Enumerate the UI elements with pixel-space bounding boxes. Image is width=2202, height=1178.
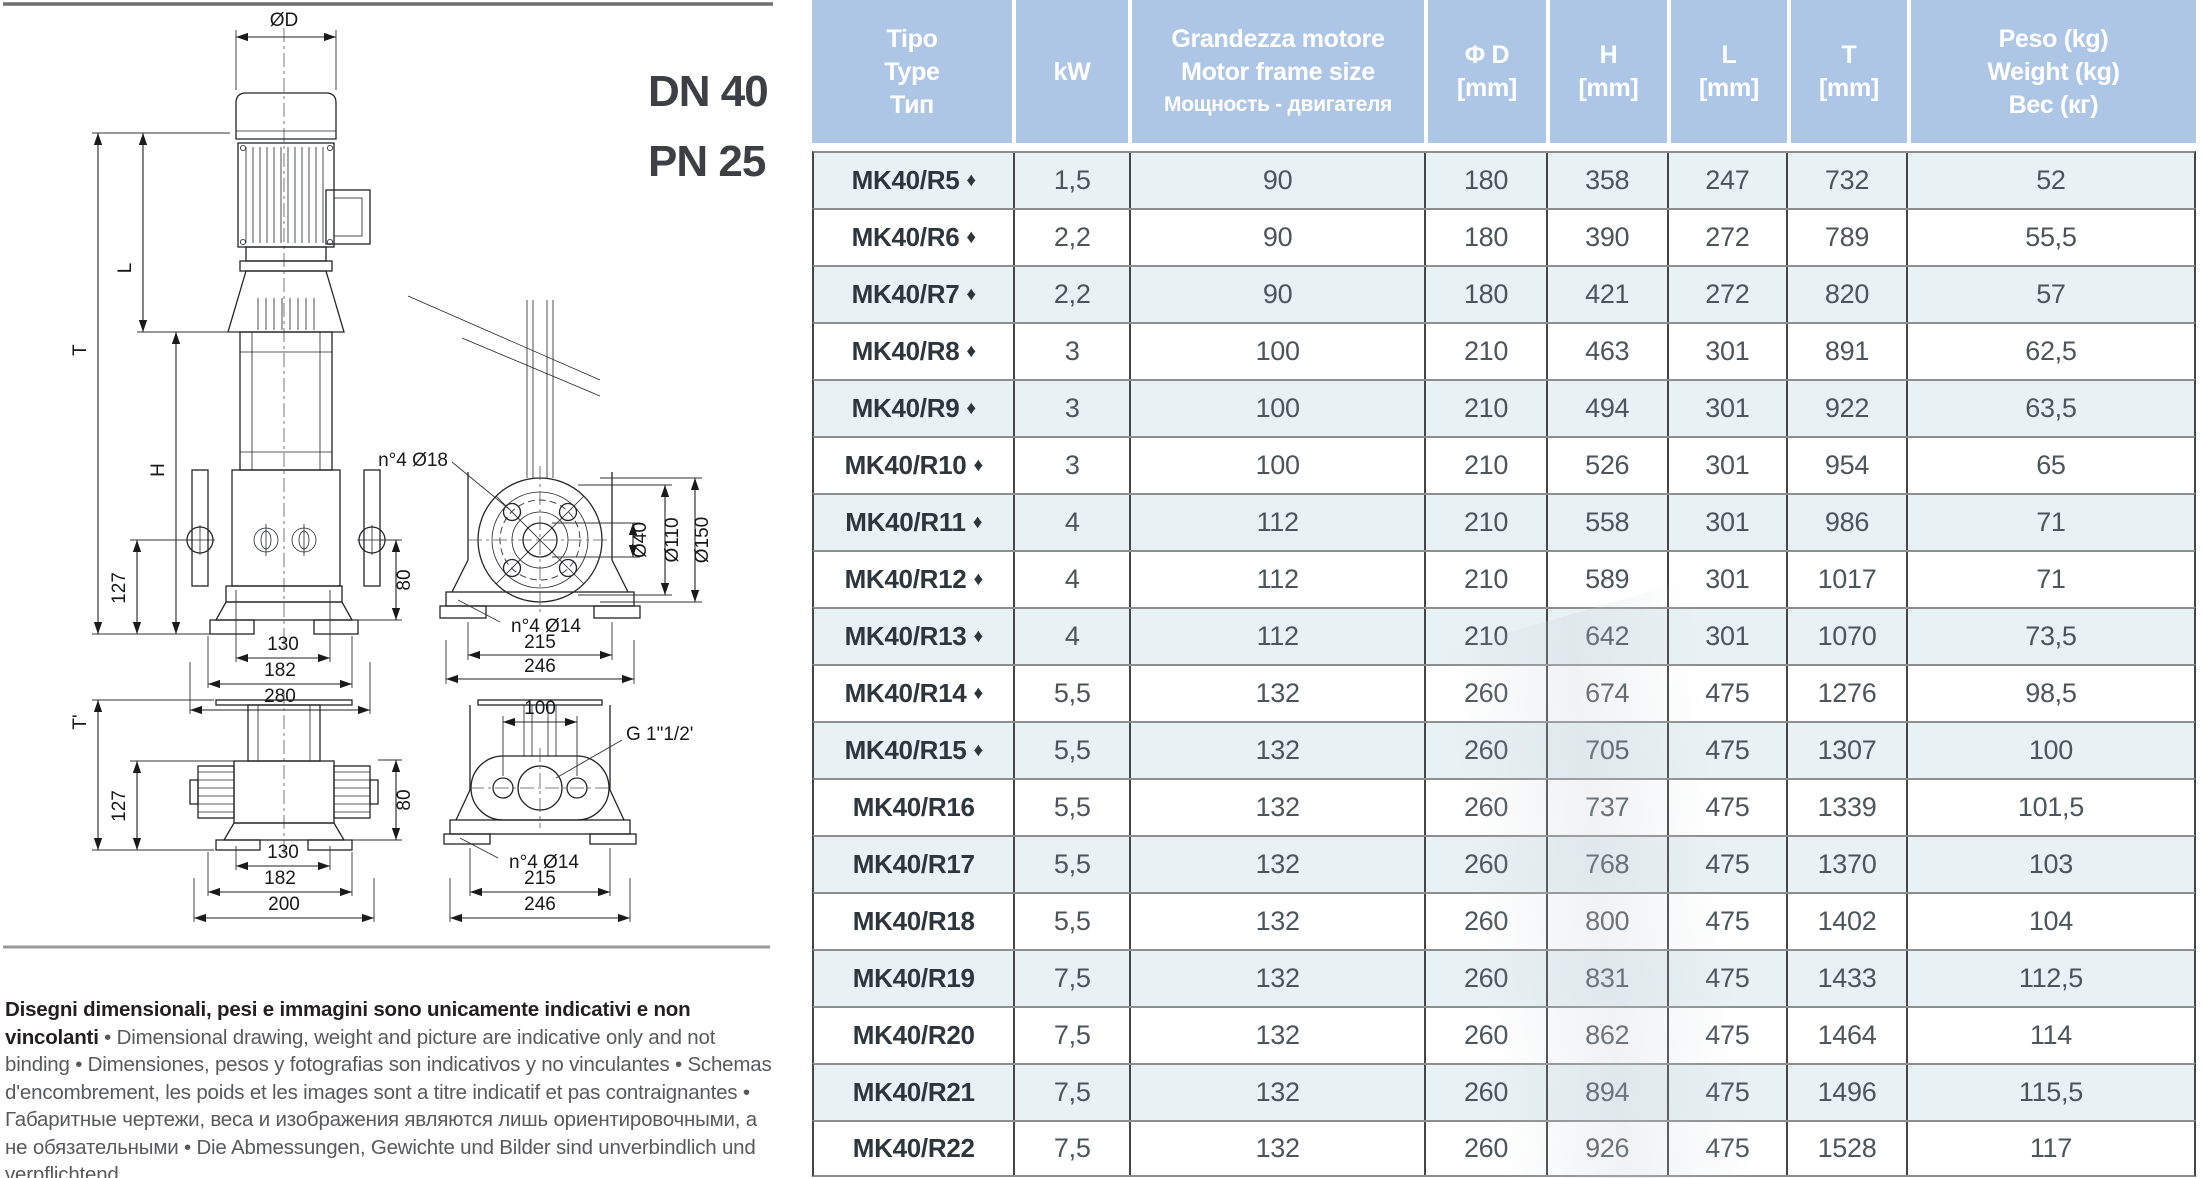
phid-cell: 180 xyxy=(1424,210,1546,265)
dim-label-d150: Ø150 xyxy=(692,517,713,563)
frame-cell: 132 xyxy=(1129,780,1424,835)
h-cell: 390 xyxy=(1546,210,1667,265)
model-cell: MK40/R16 xyxy=(814,780,1013,835)
model-cell: MK40/R6♦ xyxy=(814,210,1013,265)
header-phi-d-unit: [mm] xyxy=(1457,73,1517,103)
phid-cell: 210 xyxy=(1424,324,1546,379)
table-row: MK40/R10♦310021052630195465 xyxy=(812,436,2196,493)
h-cell: 526 xyxy=(1546,438,1667,493)
model-label: MK40/R16 xyxy=(853,792,975,823)
t-cell: 1339 xyxy=(1786,780,1906,835)
header-frame-ru: Мощность - двигателя xyxy=(1164,90,1392,120)
kw-cell: 7,5 xyxy=(1013,1065,1129,1120)
table-row: MK40/R15♦5,51322607054751307100 xyxy=(812,721,2196,778)
weight-cell: 65 xyxy=(1906,438,2194,493)
weight-cell: 117 xyxy=(1906,1122,2194,1175)
weight-cell: 98,5 xyxy=(1906,666,2194,721)
t-cell: 1307 xyxy=(1786,723,1906,778)
table-row: MK40/R185,51322608004751402104 xyxy=(812,892,2196,949)
front-view: ØD xyxy=(70,10,415,714)
diamond-icon: ♦ xyxy=(966,284,975,306)
l-cell: 475 xyxy=(1667,723,1787,778)
t-cell: 1276 xyxy=(1786,666,1906,721)
dim-label-130-front: 130 xyxy=(267,634,299,655)
model-label: MK40/R19 xyxy=(853,963,975,994)
kw-cell: 4 xyxy=(1013,609,1129,664)
kw-cell: 4 xyxy=(1013,495,1129,550)
h-cell: 463 xyxy=(1546,324,1667,379)
t-cell: 1402 xyxy=(1786,894,1906,949)
table-row: MK40/R11♦411221055830198671 xyxy=(812,493,2196,550)
diamond-icon: ♦ xyxy=(966,170,975,192)
weight-cell: 71 xyxy=(1906,552,2194,607)
weight-cell: 114 xyxy=(1906,1008,2194,1063)
table-row: MK40/R217,51322608944751496115,5 xyxy=(812,1063,2196,1120)
l-cell: 475 xyxy=(1667,951,1787,1006)
l-cell: 301 xyxy=(1667,495,1787,550)
l-cell: 272 xyxy=(1667,267,1787,322)
l-cell: 475 xyxy=(1667,1065,1787,1120)
dim-label-215-upper: 215 xyxy=(524,632,556,653)
header-h-unit: [mm] xyxy=(1579,73,1639,103)
diamond-icon: ♦ xyxy=(973,683,982,705)
header-frame-it: Grandezza motore xyxy=(1171,24,1384,54)
header-type-en: Type xyxy=(884,57,939,87)
model-cell: MK40/R17 xyxy=(814,837,1013,892)
pn-label: PN 25 xyxy=(648,137,766,186)
dn-label: DN 40 xyxy=(648,67,768,116)
table-row: MK40/R227,51322609264751528117 xyxy=(812,1120,2196,1177)
spec-table: Tipo Type Тип kW Grandezza motore Motor … xyxy=(812,0,2196,1178)
h-cell: 894 xyxy=(1546,1065,1667,1120)
l-cell: 247 xyxy=(1667,153,1787,208)
h-cell: 421 xyxy=(1546,267,1667,322)
kw-cell: 2,2 xyxy=(1013,267,1129,322)
model-cell: MK40/R5♦ xyxy=(814,153,1013,208)
table-header-row: Tipo Type Тип kW Grandezza motore Motor … xyxy=(812,0,2196,143)
l-cell: 475 xyxy=(1667,837,1787,892)
frame-cell: 100 xyxy=(1129,324,1424,379)
model-label: MK40/R21 xyxy=(853,1077,975,1108)
model-label: MK40/R5 xyxy=(852,165,960,196)
table-row: MK40/R9♦310021049430192263,5 xyxy=(812,379,2196,436)
t-cell: 1528 xyxy=(1786,1122,1906,1175)
t-cell: 986 xyxy=(1786,495,1906,550)
table-row: MK40/R175,51322607684751370103 xyxy=(812,835,2196,892)
frame-cell: 112 xyxy=(1129,552,1424,607)
h-cell: 674 xyxy=(1546,666,1667,721)
catalog-page: DN 40 PN 25 ØD xyxy=(0,0,2202,1178)
l-cell: 301 xyxy=(1667,381,1787,436)
t-cell: 1464 xyxy=(1786,1008,1906,1063)
model-cell: MK40/R21 xyxy=(814,1065,1013,1120)
model-label: MK40/R9 xyxy=(852,393,960,424)
diamond-icon: ♦ xyxy=(966,398,975,420)
model-label: MK40/R6 xyxy=(852,222,960,253)
model-label: MK40/R10 xyxy=(845,450,967,481)
model-cell: MK40/R14♦ xyxy=(814,666,1013,721)
frame-cell: 132 xyxy=(1129,837,1424,892)
model-label: MK40/R12 xyxy=(845,564,967,595)
header-h-label: H xyxy=(1600,40,1618,70)
frame-cell: 90 xyxy=(1129,153,1424,208)
h-cell: 558 xyxy=(1546,495,1667,550)
table-row: MK40/R207,51322608624751464114 xyxy=(812,1006,2196,1063)
model-label: MK40/R13 xyxy=(845,621,967,652)
header-t-label: T xyxy=(1842,40,1857,70)
dim-label-80-front: 80 xyxy=(394,569,415,590)
header-h: H [mm] xyxy=(1546,0,1667,143)
header-weight-ru: Вес (кг) xyxy=(2009,90,2099,120)
frame-cell: 132 xyxy=(1129,723,1424,778)
weight-cell: 103 xyxy=(1906,837,2194,892)
model-cell: MK40/R8♦ xyxy=(814,324,1013,379)
dim-label-80-lower: 80 xyxy=(394,789,415,810)
h-cell: 737 xyxy=(1546,780,1667,835)
model-cell: MK40/R19 xyxy=(814,951,1013,1006)
frame-cell: 132 xyxy=(1129,1065,1424,1120)
table-row: MK40/R12♦4112210589301101771 xyxy=(812,550,2196,607)
model-label: MK40/R8 xyxy=(852,336,960,367)
dim-label-t: T xyxy=(70,344,91,356)
phid-cell: 260 xyxy=(1424,1008,1546,1063)
t-cell: 1496 xyxy=(1786,1065,1906,1120)
diamond-icon: ♦ xyxy=(973,569,982,591)
model-cell: MK40/R9♦ xyxy=(814,381,1013,436)
header-motor-frame: Grandezza motore Motor frame size Мощнос… xyxy=(1128,0,1424,143)
model-label: MK40/R14 xyxy=(845,678,967,709)
model-cell: MK40/R13♦ xyxy=(814,609,1013,664)
diamond-icon: ♦ xyxy=(973,626,982,648)
dim-label-246-lower: 246 xyxy=(524,894,556,915)
h-cell: 768 xyxy=(1546,837,1667,892)
header-kw-label: kW xyxy=(1054,57,1091,87)
t-cell: 1070 xyxy=(1786,609,1906,664)
dim-label-182-front: 182 xyxy=(264,660,296,681)
phid-cell: 260 xyxy=(1424,723,1546,778)
model-cell: MK40/R12♦ xyxy=(814,552,1013,607)
dim-label-l: L xyxy=(115,263,136,274)
header-frame-en: Motor frame size xyxy=(1181,57,1375,87)
diamond-icon: ♦ xyxy=(966,227,975,249)
t-cell: 891 xyxy=(1786,324,1906,379)
dim-label-d40: Ø40 xyxy=(630,522,651,558)
h-cell: 358 xyxy=(1546,153,1667,208)
kw-cell: 7,5 xyxy=(1013,1122,1129,1175)
dim-label-t-prime: T' xyxy=(70,714,91,729)
model-label: MK40/R18 xyxy=(853,906,975,937)
lower-right-view: 100 G 1"1/2' n°4 Ø14 215 246 xyxy=(444,698,693,922)
phid-cell: 260 xyxy=(1424,837,1546,892)
weight-cell: 100 xyxy=(1906,723,2194,778)
model-cell: MK40/R10♦ xyxy=(814,438,1013,493)
phid-cell: 260 xyxy=(1424,666,1546,721)
phid-cell: 210 xyxy=(1424,381,1546,436)
table-row: MK40/R8♦310021046330189162,5 xyxy=(812,322,2196,379)
kw-cell: 7,5 xyxy=(1013,1008,1129,1063)
dim-label-246-upper: 246 xyxy=(524,656,556,677)
model-label: MK40/R11 xyxy=(845,507,965,538)
l-cell: 301 xyxy=(1667,609,1787,664)
dim-label-g-thread: G 1"1/2' xyxy=(626,724,693,745)
dim-label-182-lower: 182 xyxy=(264,868,296,889)
kw-cell: 4 xyxy=(1013,552,1129,607)
kw-cell: 5,5 xyxy=(1013,723,1129,778)
weight-cell: 112,5 xyxy=(1906,951,2194,1006)
h-cell: 642 xyxy=(1546,609,1667,664)
kw-cell: 7,5 xyxy=(1013,951,1129,1006)
l-cell: 475 xyxy=(1667,1008,1787,1063)
l-cell: 301 xyxy=(1667,438,1787,493)
t-cell: 732 xyxy=(1786,153,1906,208)
model-label: MK40/R15 xyxy=(845,735,967,766)
drawing-panel: DN 40 PN 25 ØD xyxy=(0,0,780,1178)
disclaimer-text: Disegni dimensionali, pesi e immagini so… xyxy=(5,996,773,1178)
diamond-icon: ♦ xyxy=(973,455,982,477)
kw-cell: 3 xyxy=(1013,381,1129,436)
model-cell: MK40/R18 xyxy=(814,894,1013,949)
table-rows: MK40/R5♦1,59018035824773252MK40/R6♦2,290… xyxy=(812,151,2196,1177)
weight-cell: 57 xyxy=(1906,267,2194,322)
kw-cell: 1,5 xyxy=(1013,153,1129,208)
frame-cell: 132 xyxy=(1129,1122,1424,1175)
phid-cell: 210 xyxy=(1424,438,1546,493)
header-t-unit: [mm] xyxy=(1819,73,1879,103)
dim-label-d110: Ø110 xyxy=(662,517,683,562)
table-row: MK40/R13♦4112210642301107073,5 xyxy=(812,607,2196,664)
header-phi-d-label: Φ D xyxy=(1465,40,1510,70)
dim-label-130-lower: 130 xyxy=(267,842,299,863)
frame-cell: 132 xyxy=(1129,666,1424,721)
l-cell: 272 xyxy=(1667,210,1787,265)
t-cell: 820 xyxy=(1786,267,1906,322)
t-cell: 922 xyxy=(1786,381,1906,436)
h-cell: 862 xyxy=(1546,1008,1667,1063)
dim-label-phid: ØD xyxy=(270,10,299,31)
diamond-icon: ♦ xyxy=(973,740,982,762)
frame-cell: 100 xyxy=(1129,381,1424,436)
phid-cell: 210 xyxy=(1424,495,1546,550)
t-cell: 1433 xyxy=(1786,951,1906,1006)
kw-cell: 5,5 xyxy=(1013,894,1129,949)
header-weight-it: Peso (kg) xyxy=(1999,24,2109,54)
kw-cell: 3 xyxy=(1013,324,1129,379)
weight-cell: 71 xyxy=(1906,495,2194,550)
header-weight-en: Weight (kg) xyxy=(1987,57,2119,87)
table-row: MK40/R5♦1,59018035824773252 xyxy=(812,151,2196,208)
frame-cell: 132 xyxy=(1129,1008,1424,1063)
phid-cell: 260 xyxy=(1424,1065,1546,1120)
model-cell: MK40/R11♦ xyxy=(814,495,1013,550)
model-cell: MK40/R20 xyxy=(814,1008,1013,1063)
model-label: MK40/R22 xyxy=(853,1133,975,1164)
table-row: MK40/R197,51322608314751433112,5 xyxy=(812,949,2196,1006)
model-cell: MK40/R22 xyxy=(814,1122,1013,1175)
header-t: T [mm] xyxy=(1787,0,1907,143)
dim-label-200-lower: 200 xyxy=(268,894,300,915)
t-cell: 1017 xyxy=(1786,552,1906,607)
l-cell: 301 xyxy=(1667,324,1787,379)
phid-cell: 260 xyxy=(1424,780,1546,835)
phid-cell: 210 xyxy=(1424,552,1546,607)
frame-cell: 112 xyxy=(1129,495,1424,550)
t-cell: 954 xyxy=(1786,438,1906,493)
dim-label-127-front: 127 xyxy=(109,572,130,604)
kw-cell: 5,5 xyxy=(1013,837,1129,892)
header-l-unit: [mm] xyxy=(1699,73,1759,103)
header-weight: Peso (kg) Weight (kg) Вес (кг) xyxy=(1907,0,2196,143)
l-cell: 475 xyxy=(1667,894,1787,949)
l-cell: 475 xyxy=(1667,780,1787,835)
table-row: MK40/R165,51322607374751339101,5 xyxy=(812,778,2196,835)
weight-cell: 52 xyxy=(1906,153,2194,208)
disclaimer-rest: • Dimensional drawing, weight and pictur… xyxy=(5,1026,772,1178)
weight-cell: 73,5 xyxy=(1906,609,2194,664)
kw-cell: 5,5 xyxy=(1013,780,1129,835)
t-cell: 1370 xyxy=(1786,837,1906,892)
header-phi-d: Φ D [mm] xyxy=(1424,0,1546,143)
header-l-label: L xyxy=(1722,40,1737,70)
dim-label-bolts-18: n°4 Ø18 xyxy=(378,450,448,471)
l-cell: 475 xyxy=(1667,1122,1787,1175)
weight-cell: 104 xyxy=(1906,894,2194,949)
phid-cell: 260 xyxy=(1424,894,1546,949)
dim-label-215-lower: 215 xyxy=(524,868,556,889)
dim-label-127-lower: 127 xyxy=(109,790,130,822)
h-cell: 494 xyxy=(1546,381,1667,436)
dim-label-280-front: 280 xyxy=(264,686,296,707)
phid-cell: 180 xyxy=(1424,267,1546,322)
phid-cell: 210 xyxy=(1424,609,1546,664)
weight-cell: 62,5 xyxy=(1906,324,2194,379)
kw-cell: 2,2 xyxy=(1013,210,1129,265)
frame-cell: 90 xyxy=(1129,267,1424,322)
lower-left-view: T' 127 80 130 182 200 xyxy=(70,690,415,922)
h-cell: 589 xyxy=(1546,552,1667,607)
frame-cell: 132 xyxy=(1129,951,1424,1006)
t-cell: 789 xyxy=(1786,210,1906,265)
frame-cell: 100 xyxy=(1129,438,1424,493)
weight-cell: 115,5 xyxy=(1906,1065,2194,1120)
h-cell: 705 xyxy=(1546,723,1667,778)
kw-cell: 3 xyxy=(1013,438,1129,493)
header-kw: kW xyxy=(1012,0,1128,143)
table-row: MK40/R7♦2,29018042127282057 xyxy=(812,265,2196,322)
diamond-icon: ♦ xyxy=(973,512,982,534)
kw-cell: 5,5 xyxy=(1013,666,1129,721)
h-cell: 926 xyxy=(1546,1122,1667,1175)
table-row: MK40/R14♦5,5132260674475127698,5 xyxy=(812,664,2196,721)
h-cell: 800 xyxy=(1546,894,1667,949)
frame-cell: 90 xyxy=(1129,210,1424,265)
phid-cell: 260 xyxy=(1424,951,1546,1006)
header-type-it: Tipo xyxy=(886,24,937,54)
l-cell: 301 xyxy=(1667,552,1787,607)
frame-cell: 132 xyxy=(1129,894,1424,949)
model-label: MK40/R7 xyxy=(852,279,960,310)
l-cell: 475 xyxy=(1667,666,1787,721)
header-type: Tipo Type Тип xyxy=(812,0,1012,143)
flange-view: n°4 Ø18 Ø40 Ø110 Ø150 n°4 Ø14 xyxy=(378,296,713,684)
header-l: L [mm] xyxy=(1667,0,1787,143)
pump-dimensional-drawing: DN 40 PN 25 ØD xyxy=(0,0,780,962)
weight-cell: 101,5 xyxy=(1906,780,2194,835)
weight-cell: 63,5 xyxy=(1906,381,2194,436)
frame-cell: 112 xyxy=(1129,609,1424,664)
phid-cell: 260 xyxy=(1424,1122,1546,1175)
model-cell: MK40/R15♦ xyxy=(814,723,1013,778)
dim-label-100: 100 xyxy=(524,698,556,719)
model-cell: MK40/R7♦ xyxy=(814,267,1013,322)
diamond-icon: ♦ xyxy=(966,341,975,363)
table-row: MK40/R6♦2,29018039027278955,5 xyxy=(812,208,2196,265)
model-label: MK40/R17 xyxy=(853,849,975,880)
weight-cell: 55,5 xyxy=(1906,210,2194,265)
header-type-ru: Тип xyxy=(890,90,934,120)
phid-cell: 180 xyxy=(1424,153,1546,208)
dim-label-h: H xyxy=(148,463,169,477)
h-cell: 831 xyxy=(1546,951,1667,1006)
model-label: MK40/R20 xyxy=(853,1020,975,1051)
